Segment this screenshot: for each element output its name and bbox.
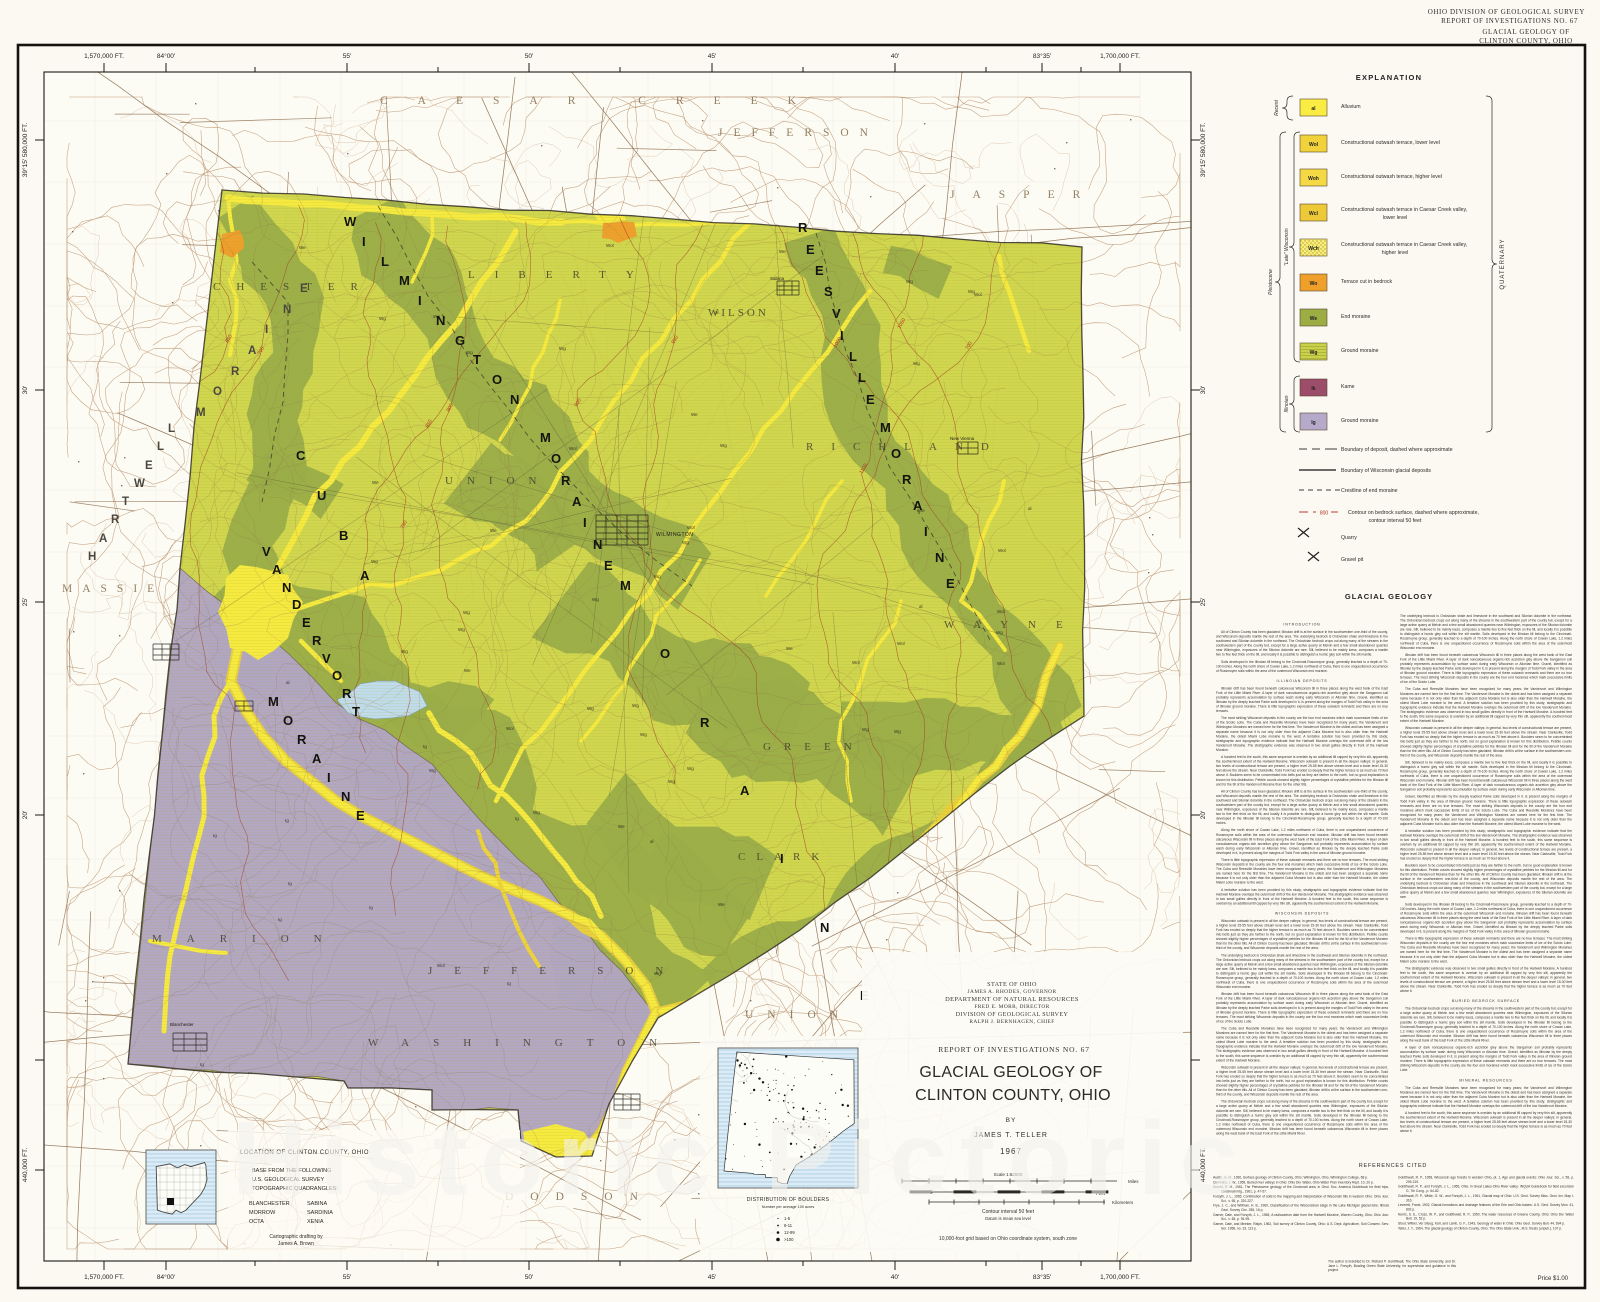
svg-text:Ig: Ig [213, 833, 217, 838]
svg-text:We: We [918, 508, 925, 513]
svg-text:Wg: Wg [592, 597, 599, 602]
svg-text:800: 800 [1320, 511, 1329, 517]
svg-text:39°15′ 580,000 FT.: 39°15′ 580,000 FT. [21, 123, 29, 178]
svg-text:Wg: Wg [466, 350, 473, 355]
svg-text:M: M [620, 578, 631, 593]
svg-text:End moraine: End moraine [1341, 314, 1371, 320]
svg-text:JASPER: JASPER [950, 189, 1098, 201]
svg-text:Wg: Wg [913, 361, 920, 366]
svg-text:30′: 30′ [22, 385, 29, 394]
svg-text:Wg: Wg [862, 727, 869, 732]
svg-text:Wol: Wol [606, 243, 614, 248]
svg-text:LIBERTY: LIBERTY [468, 269, 654, 281]
svg-text:Wcl: Wcl [1309, 211, 1319, 217]
svg-text:G: G [455, 333, 465, 348]
svg-text:W: W [344, 214, 357, 229]
svg-text:Wg: Wg [401, 649, 408, 654]
svg-text:20′: 20′ [1200, 810, 1207, 819]
svg-text:R: R [342, 686, 352, 701]
svg-text:V: V [262, 544, 271, 559]
svg-text:E: E [806, 242, 815, 257]
svg-text:Wg: Wg [654, 574, 661, 579]
svg-text:L: L [157, 441, 164, 453]
svg-text:L: L [849, 349, 857, 364]
svg-text:30′: 30′ [1200, 385, 1207, 394]
svg-text:84°00′: 84°00′ [157, 52, 176, 60]
svg-text:Wg: Wg [587, 706, 594, 711]
svg-text:RICHLAND: RICHLAND [806, 441, 1007, 453]
svg-text:Constructional outwash terrace: Constructional outwash terrace, higher l… [1341, 174, 1442, 180]
svg-text:Wg: Wg [668, 779, 675, 784]
svg-text:CLINTON COUNTY, OHIO: CLINTON COUNTY, OHIO [1479, 37, 1573, 45]
svg-text:Wg: Wg [720, 443, 727, 448]
svg-text:Quarry: Quarry [1341, 535, 1357, 541]
svg-text:Pleistocene: Pleistocene [1268, 269, 1274, 295]
svg-text:CLARK: CLARK [738, 851, 830, 863]
svg-text:50′: 50′ [525, 53, 534, 60]
svg-text:Wg: Wg [654, 971, 661, 976]
svg-text:Crestline of end moraine: Crestline of end moraine [1341, 488, 1398, 494]
svg-text:JEFFERSON: JEFFERSON [428, 965, 685, 977]
svg-text:83°35′: 83°35′ [1033, 52, 1052, 60]
svg-text:Recent: Recent [1274, 99, 1280, 115]
svg-text:T: T [473, 352, 481, 367]
svg-text:We: We [618, 824, 625, 829]
svg-text:H: H [88, 551, 96, 563]
svg-text:T: T [352, 704, 360, 719]
svg-text:We: We [779, 249, 786, 254]
svg-text:N: N [510, 392, 519, 407]
svg-text:EXPLANATION: EXPLANATION [1356, 73, 1422, 82]
svg-text:WASHINGTON: WASHINGTON [368, 1037, 681, 1049]
svg-text:We: We [372, 480, 379, 485]
svg-text:Wg: Wg [433, 314, 440, 319]
svg-text:REPORT OF INVESTIGATIONS NO. 6: REPORT OF INVESTIGATIONS NO. 67 [1441, 17, 1578, 25]
svg-text:R: R [312, 633, 322, 648]
svg-text:We: We [464, 668, 471, 673]
svg-text:E: E [815, 263, 824, 278]
svg-text:A: A [572, 494, 582, 509]
svg-text:B: B [339, 528, 348, 543]
svg-text:JAMES A. RHODES, GOVERNOR: JAMES A. RHODES, GOVERNOR [968, 989, 1057, 995]
svg-text:Wg: Wg [894, 729, 901, 734]
svg-text:E: E [302, 615, 311, 630]
svg-text:QUATERNARY: QUATERNARY [1500, 238, 1506, 289]
svg-text:Ground moraine: Ground moraine [1341, 418, 1379, 424]
svg-text:Wg: Wg [640, 732, 647, 737]
svg-text:GLACIAL GEOLOGY OF: GLACIAL GEOLOGY OF [919, 1064, 1102, 1081]
svg-text:N: N [283, 304, 291, 316]
svg-text:Wg: Wg [559, 346, 566, 351]
svg-text:I: I [362, 234, 366, 249]
svg-text:Wol: Wol [997, 661, 1005, 666]
svg-text:R: R [561, 473, 571, 488]
svg-text:al: al [919, 604, 923, 609]
svg-text:R: R [700, 715, 710, 730]
svg-text:MARION: MARION [152, 933, 347, 945]
svg-text:1,570,000 FT.: 1,570,000 FT. [84, 1274, 124, 1281]
svg-text:55′: 55′ [343, 1274, 352, 1281]
svg-text:I: I [327, 770, 331, 785]
svg-text:45′: 45′ [708, 1274, 717, 1281]
svg-text:D: D [292, 597, 301, 612]
svg-text:WILMINGTON: WILMINGTON [656, 532, 693, 538]
svg-text:E: E [866, 392, 875, 407]
svg-text:I: I [265, 324, 268, 336]
svg-text:A: A [312, 751, 322, 766]
svg-text:Wo: Wo [1310, 281, 1318, 287]
svg-text:Ig: Ig [423, 744, 427, 749]
svg-text:Wg: Wg [996, 630, 1003, 635]
svg-text:Boundary of deposit, dashed wh: Boundary of deposit, dashed where approx… [1341, 447, 1453, 453]
svg-text:Wol: Wol [687, 525, 695, 530]
svg-text:Price $1.00: Price $1.00 [1538, 1276, 1569, 1282]
svg-text:M: M [196, 407, 206, 419]
svg-text:Wg: Wg [632, 703, 639, 708]
svg-text:R: R [297, 732, 307, 747]
svg-text:S: S [824, 284, 833, 299]
svg-text:JEFFERSON: JEFFERSON [718, 127, 879, 139]
svg-text:Illinoian: Illinoian [1284, 395, 1290, 412]
svg-text:I: I [583, 515, 587, 530]
svg-text:E: E [604, 558, 613, 573]
svg-text:T: T [122, 496, 129, 508]
svg-text:V: V [832, 306, 841, 321]
svg-text:M: M [540, 430, 551, 445]
svg-text:WAYNE: WAYNE [944, 619, 1083, 631]
svg-text:Wol: Wol [569, 446, 577, 451]
svg-text:We: We [718, 902, 725, 907]
svg-text:Wg: Wg [429, 768, 436, 773]
svg-text:RALPH J. BERNHAGEN, CHIEF: RALPH J. BERNHAGEN, CHIEF [969, 1019, 1054, 1025]
svg-text:We: We [1310, 316, 1318, 322]
svg-text:20′: 20′ [22, 810, 29, 819]
svg-text:GLACIAL GEOLOGY: GLACIAL GEOLOGY [1345, 592, 1433, 601]
svg-text:N: N [935, 550, 944, 565]
svg-text:Ig: Ig [288, 881, 292, 886]
svg-text:O: O [283, 713, 293, 728]
svg-text:Wg: Wg [458, 627, 465, 632]
svg-text:R: R [111, 514, 120, 526]
svg-text:Ig: Ig [507, 981, 511, 986]
svg-text:Blanchester: Blanchester [170, 1022, 194, 1027]
svg-text:al: al [286, 680, 290, 685]
svg-text:1,570,000 FT.: 1,570,000 FT. [84, 53, 124, 60]
svg-text:A: A [360, 568, 370, 583]
svg-text:E: E [946, 576, 955, 591]
svg-text:R: R [902, 472, 912, 487]
svg-text:A: A [248, 345, 256, 357]
svg-text:45′: 45′ [708, 53, 717, 60]
svg-text:Boundary of Wisconsin glacial: Boundary of Wisconsin glacial deposits [1341, 468, 1431, 474]
svg-text:Woh: Woh [1308, 176, 1319, 182]
svg-text:U: U [317, 488, 326, 503]
svg-text:GLACIAL GEOLOGY OF: GLACIAL GEOLOGY OF [1482, 28, 1569, 36]
svg-text:Wg: Wg [682, 540, 689, 545]
svg-text:Terrace cut in bedrock: Terrace cut in bedrock [1341, 279, 1392, 285]
svg-text:Wch: Wch [1308, 246, 1319, 252]
svg-text:C: C [296, 448, 306, 463]
svg-text:Wol: Wol [997, 609, 1005, 614]
svg-text:V: V [322, 651, 331, 666]
svg-text:Gravel pit: Gravel pit [1341, 557, 1364, 563]
svg-text:440,000 FT.: 440,000 FT. [22, 1148, 29, 1183]
svg-text:Ig: Ig [278, 917, 282, 922]
svg-text:W: W [134, 478, 145, 490]
svg-text:Alluvium: Alluvium [1341, 104, 1361, 110]
svg-text:GREEN: GREEN [763, 741, 865, 753]
svg-text:DEPARTMENT OF NATURAL RESOURCE: DEPARTMENT OF NATURAL RESOURCES [945, 996, 1079, 1003]
svg-text:O: O [492, 372, 502, 387]
svg-text:E: E [145, 460, 153, 472]
svg-text:Ig: Ig [200, 1062, 204, 1067]
svg-text:R: R [231, 366, 240, 378]
svg-text:A: A [272, 562, 282, 577]
svg-text:L: L [381, 254, 389, 269]
svg-text:Wol: Wol [506, 726, 514, 731]
svg-text:al: al [715, 310, 719, 315]
svg-text:I: I [924, 524, 928, 539]
svg-text:Wg: Wg [371, 559, 378, 564]
svg-text:We: We [490, 528, 497, 533]
svg-text:Ig: Ig [515, 816, 519, 821]
svg-text:O: O [332, 668, 342, 683]
svg-text:Constructional outwash terrace: Constructional outwash terrace in Caesar… [1341, 207, 1467, 213]
svg-text:1,700,000 FT.: 1,700,000 FT. [1100, 1274, 1140, 1281]
svg-text:Kame: Kame [1341, 384, 1355, 390]
svg-text:Wol: Wol [974, 292, 982, 297]
svg-text:M: M [268, 694, 279, 709]
svg-text:al: al [1311, 106, 1316, 112]
svg-text:"Late" Wisconsin: "Late" Wisconsin [1284, 228, 1290, 266]
svg-text:FRED E. MORR, DIRECTOR: FRED E. MORR, DIRECTOR [974, 1004, 1049, 1010]
svg-text:Wg: Wg [1310, 350, 1318, 356]
svg-text:O: O [213, 386, 222, 398]
svg-text:55′: 55′ [343, 53, 352, 60]
svg-text:A: A [99, 533, 107, 545]
svg-text:Sabina: Sabina [770, 276, 785, 281]
svg-text:M: M [399, 273, 410, 288]
svg-text:O: O [660, 646, 670, 661]
svg-text:We: We [299, 245, 306, 250]
svg-text:CAESAR CREEK: CAESAR CREEK [380, 95, 826, 107]
svg-text:Ik: Ik [1311, 386, 1315, 392]
svg-text:DIVISION OF GEOLOGICAL SURVEY: DIVISION OF GEOLOGICAL SURVEY [956, 1012, 1069, 1018]
svg-text:lower level: lower level [1383, 215, 1408, 221]
svg-text:Ig: Ig [369, 905, 373, 910]
svg-text:Wg: Wg [906, 279, 913, 284]
svg-text:M: M [880, 420, 891, 435]
svg-text:REPORT OF INVESTIGATIONS NO. 6: REPORT OF INVESTIGATIONS NO. 67 [938, 1045, 1090, 1054]
svg-text:Wol: Wol [1309, 142, 1319, 148]
svg-text:Wol: Wol [437, 963, 445, 968]
svg-text:UNION: UNION [445, 475, 550, 487]
svg-text:STATE OF OHIO: STATE OF OHIO [987, 981, 1037, 988]
svg-text:Wg: Wg [463, 610, 470, 615]
svg-text:MASSIE: MASSIE [62, 583, 164, 595]
svg-text:40′: 40′ [891, 1274, 900, 1281]
svg-text:Constructional outwash terrace: Constructional outwash terrace, lower le… [1341, 140, 1440, 146]
svg-text:39°15′ 580,000 FT.: 39°15′ 580,000 FT. [1199, 123, 1207, 178]
svg-text:We: We [691, 412, 698, 417]
svg-text:Ground moraine: Ground moraine [1341, 348, 1379, 354]
svg-text:OHIO DIVISION OF GEOLOGICAL SU: OHIO DIVISION OF GEOLOGICAL SURVEY [1428, 8, 1585, 16]
svg-text:N: N [820, 920, 829, 935]
svg-text:Constructional outwash terrace: Constructional outwash terrace in Caesar… [1341, 242, 1467, 248]
svg-text:40′: 40′ [891, 53, 900, 60]
svg-text:Wol: Wol [897, 641, 905, 646]
svg-text:E: E [356, 808, 365, 823]
svg-text:L: L [858, 370, 866, 385]
svg-text:Ig: Ig [285, 818, 289, 823]
svg-text:Contour on bedrock surface, da: Contour on bedrock surface, dashed where… [1348, 510, 1479, 516]
svg-text:Wg: Wg [533, 810, 540, 815]
svg-text:al: al [650, 839, 654, 844]
svg-text:UNION: UNION [745, 1009, 852, 1021]
svg-text:Wg: Wg [379, 316, 386, 321]
svg-text:84°00′: 84°00′ [157, 1273, 176, 1281]
svg-text:We: We [786, 646, 793, 651]
svg-text:N: N [593, 537, 602, 552]
svg-text:A: A [740, 783, 750, 798]
svg-text:N: N [282, 580, 291, 595]
svg-text:R: R [798, 220, 808, 235]
svg-text:Wol: Wol [852, 660, 860, 665]
svg-text:contour interval 50 feet: contour interval 50 feet [1369, 518, 1422, 524]
svg-text:higher level: higher level [1382, 250, 1409, 256]
svg-text:83°35′: 83°35′ [1033, 1273, 1052, 1281]
svg-text:N: N [341, 789, 350, 804]
svg-text:Wol: Wol [998, 548, 1006, 553]
svg-text:L: L [168, 423, 175, 435]
svg-text:CHESTER: CHESTER [213, 281, 374, 293]
svg-text:Wg: Wg [687, 766, 694, 771]
svg-text:I: I [418, 293, 422, 308]
svg-text:al: al [1028, 506, 1032, 511]
svg-text:1,700,000 FT.: 1,700,000 FT. [1100, 53, 1140, 60]
svg-text:25′: 25′ [22, 597, 29, 606]
svg-text:50′: 50′ [525, 1274, 534, 1281]
svg-text:I: I [840, 328, 844, 343]
svg-text:Ig: Ig [1311, 420, 1315, 426]
svg-text:25′: 25′ [1200, 597, 1207, 606]
svg-text:O: O [551, 451, 561, 466]
